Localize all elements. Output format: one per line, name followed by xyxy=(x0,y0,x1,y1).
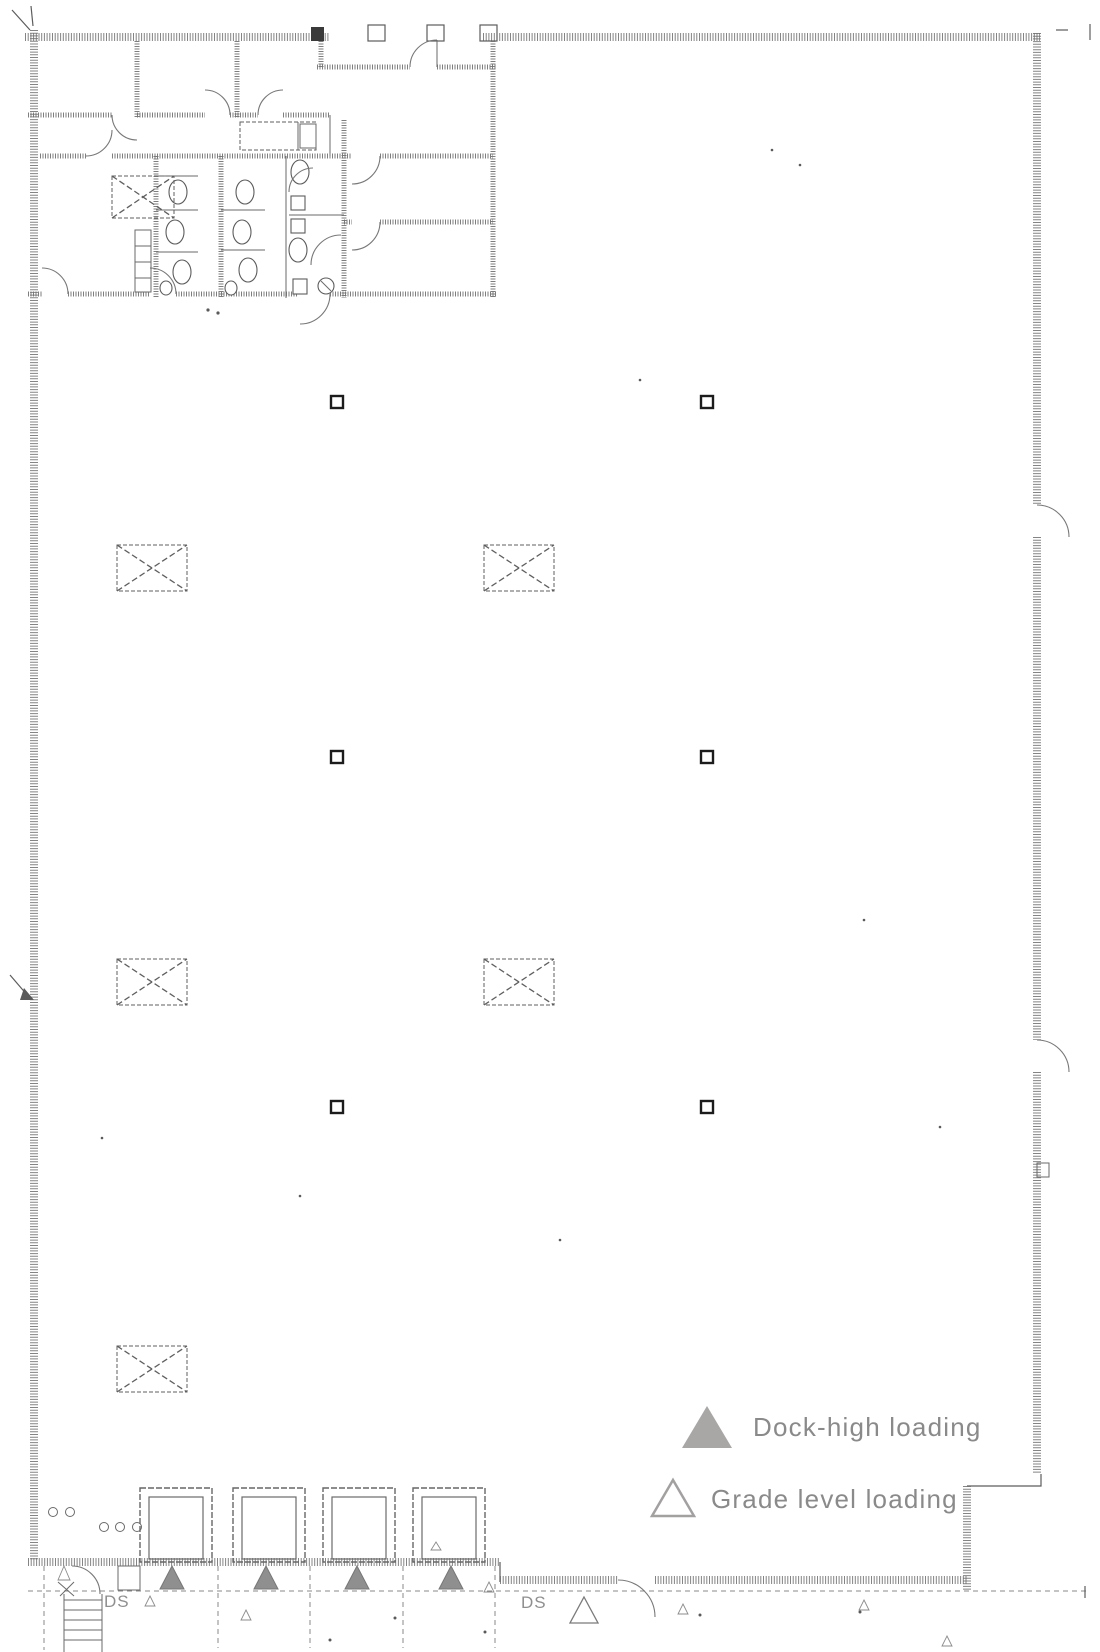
cross-braced-bay xyxy=(484,545,554,591)
steel-column xyxy=(701,751,713,763)
steel-column xyxy=(701,1101,713,1113)
steel-column xyxy=(331,751,343,763)
cross-braced-bays-layer xyxy=(117,545,554,1392)
survey-ticks xyxy=(10,6,1090,1598)
grade-level-legend-icon xyxy=(649,1477,697,1519)
dock-high-marker xyxy=(160,1566,184,1589)
grade-level-triangle-icon xyxy=(652,1480,694,1516)
grade-level-legend-label: Grade level loading xyxy=(711,1484,958,1515)
steel-column xyxy=(331,1101,343,1113)
bollards xyxy=(49,1508,142,1532)
floor-plan-drawing xyxy=(0,0,1100,1652)
steel-column xyxy=(701,396,713,408)
floor-plan-canvas: Dock-high loading Grade level loading DS… xyxy=(0,0,1100,1652)
dock-high-markers-layer xyxy=(160,1566,463,1589)
grade-level-marker xyxy=(570,1597,598,1623)
dock-high-legend-icon xyxy=(680,1404,734,1450)
dock-high-legend-label: Dock-high loading xyxy=(753,1412,982,1443)
cross-braced-bay xyxy=(117,545,187,591)
steel-column xyxy=(331,396,343,408)
column-filled xyxy=(311,27,324,41)
dock-high-triangle-icon xyxy=(682,1406,732,1448)
downspout-label-left: DS xyxy=(104,1592,130,1612)
cross-braced-bay xyxy=(117,1346,187,1392)
restroom-fixtures xyxy=(156,160,344,295)
cross-braced-bay xyxy=(484,959,554,1005)
dock-door-bays xyxy=(44,1488,495,1650)
downspout-label-right: DS xyxy=(521,1593,547,1613)
office-walls xyxy=(28,25,497,298)
dock-high-marker xyxy=(254,1566,278,1589)
dock-high-marker xyxy=(439,1566,463,1589)
dock-high-marker xyxy=(345,1566,369,1589)
exterior-door-swings xyxy=(618,505,1069,1617)
grade-level-markers-layer xyxy=(570,1597,598,1623)
cross-braced-bay xyxy=(117,959,187,1005)
